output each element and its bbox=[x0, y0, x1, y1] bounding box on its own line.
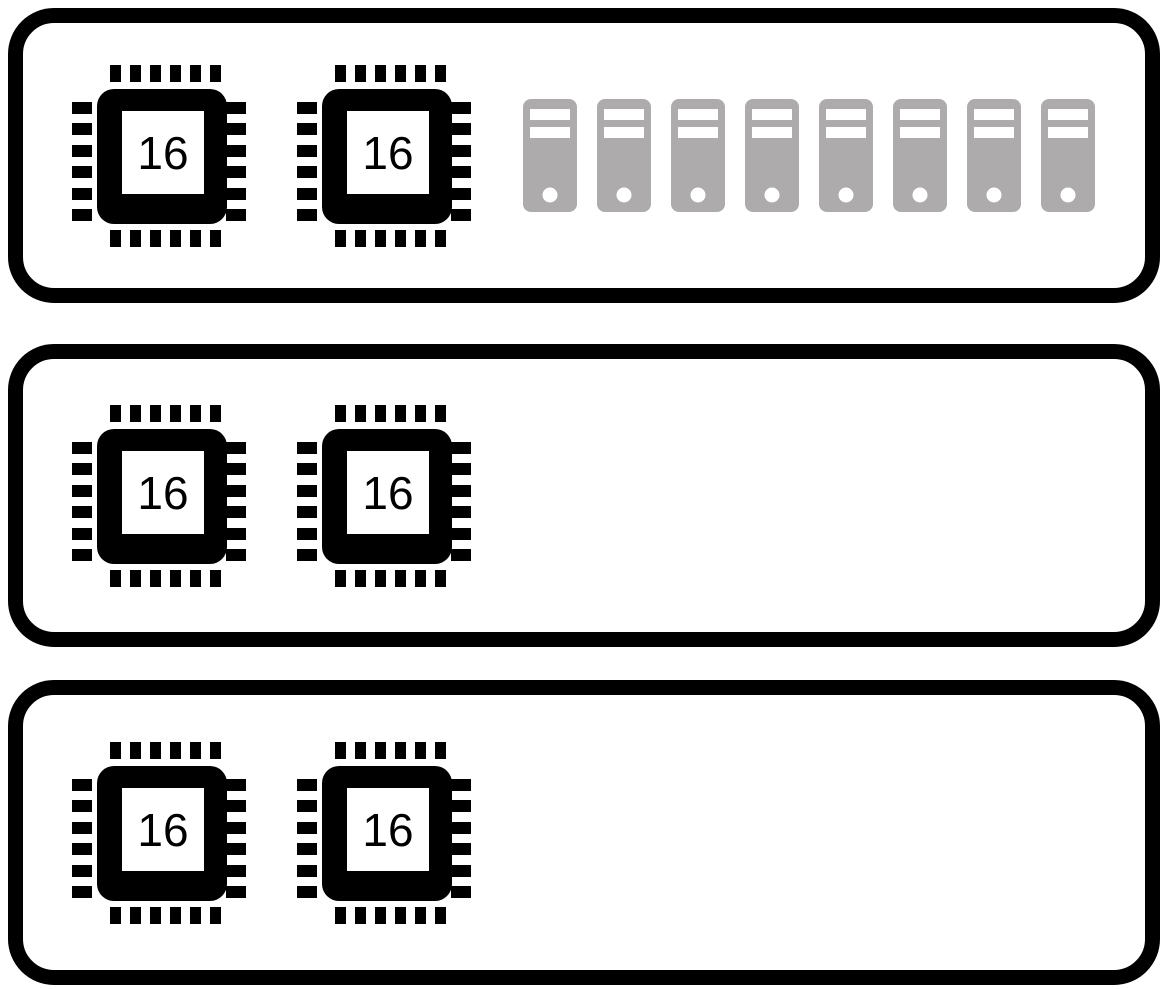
server-power-dot bbox=[765, 188, 780, 203]
compute-node-3: 16 bbox=[8, 680, 1160, 985]
cpu-group-node-2: 16 bbox=[70, 405, 473, 587]
cpu-pins-bottom bbox=[335, 907, 446, 924]
cpu-pins-right bbox=[226, 102, 246, 221]
cpu-core-count: 16 bbox=[362, 127, 413, 179]
hpc-node-diagram: 16 bbox=[0, 0, 1166, 989]
server-power-dot bbox=[987, 188, 1002, 203]
server-power-dot bbox=[617, 188, 632, 203]
cpu-pins-top bbox=[110, 742, 221, 759]
server-tower-icon bbox=[1041, 99, 1095, 212]
server-power-dot bbox=[839, 188, 854, 203]
cpu-pins-left bbox=[297, 442, 317, 561]
cpu-pins-right bbox=[226, 779, 246, 898]
cpu-pins-bottom bbox=[110, 907, 221, 924]
cpu-core-count: 16 bbox=[137, 127, 188, 179]
cpu-pins-bottom bbox=[110, 230, 221, 247]
cpu-pins-left bbox=[72, 779, 92, 898]
server-slot-bottom bbox=[604, 127, 644, 138]
server-group-node-1 bbox=[523, 99, 1095, 212]
cpu-pins-bottom bbox=[335, 570, 446, 587]
cpu-core-count: 16 bbox=[137, 804, 188, 856]
server-tower-icon bbox=[819, 99, 873, 212]
cpu-pins-right bbox=[451, 779, 471, 898]
cpu-chip-icon: 16 bbox=[295, 65, 473, 247]
cpu-pins-top bbox=[335, 742, 446, 759]
cpu-core-count: 16 bbox=[362, 467, 413, 519]
cpu-chip-icon: 16 bbox=[70, 65, 248, 247]
cpu-pins-left bbox=[72, 102, 92, 221]
server-tower-icon bbox=[523, 99, 577, 212]
server-tower-icon bbox=[745, 99, 799, 212]
server-slot-top bbox=[900, 109, 940, 120]
server-slot-top bbox=[1048, 109, 1088, 120]
compute-node-2: 16 bbox=[8, 344, 1160, 647]
server-slot-top bbox=[678, 109, 718, 120]
cpu-group-node-1: 16 bbox=[70, 65, 473, 247]
server-slot-bottom bbox=[900, 127, 940, 138]
server-slot-bottom bbox=[826, 127, 866, 138]
server-power-dot bbox=[1061, 188, 1076, 203]
server-power-dot bbox=[691, 188, 706, 203]
server-slot-bottom bbox=[1048, 127, 1088, 138]
server-slot-top bbox=[604, 109, 644, 120]
cpu-pins-right bbox=[451, 102, 471, 221]
cpu-chip-icon: 16 bbox=[70, 742, 248, 924]
server-power-dot bbox=[913, 188, 928, 203]
cpu-pins-top bbox=[110, 405, 221, 422]
server-slot-bottom bbox=[974, 127, 1014, 138]
cpu-chip-icon: 16 bbox=[70, 405, 248, 587]
cpu-pins-top bbox=[335, 65, 446, 82]
server-slot-top bbox=[752, 109, 792, 120]
server-slot-bottom bbox=[752, 127, 792, 138]
server-power-dot bbox=[543, 188, 558, 203]
server-slot-bottom bbox=[678, 127, 718, 138]
cpu-chip-icon: 16 bbox=[295, 405, 473, 587]
cpu-pins-left bbox=[297, 102, 317, 221]
server-tower-icon bbox=[671, 99, 725, 212]
server-tower-icon bbox=[967, 99, 1021, 212]
cpu-core-count: 16 bbox=[137, 467, 188, 519]
cpu-core-count: 16 bbox=[362, 804, 413, 856]
cpu-pins-right bbox=[451, 442, 471, 561]
cpu-pins-top bbox=[335, 405, 446, 422]
server-slot-top bbox=[974, 109, 1014, 120]
server-slot-bottom bbox=[530, 127, 570, 138]
cpu-chip-icon: 16 bbox=[295, 742, 473, 924]
cpu-pins-left bbox=[297, 779, 317, 898]
server-slot-top bbox=[530, 109, 570, 120]
cpu-pins-top bbox=[110, 65, 221, 82]
cpu-pins-right bbox=[226, 442, 246, 561]
cpu-pins-left bbox=[72, 442, 92, 561]
server-tower-icon bbox=[597, 99, 651, 212]
cpu-group-node-3: 16 bbox=[70, 742, 473, 924]
cpu-pins-bottom bbox=[335, 230, 446, 247]
server-tower-icon bbox=[893, 99, 947, 212]
cpu-pins-bottom bbox=[110, 570, 221, 587]
server-slot-top bbox=[826, 109, 866, 120]
compute-node-1: 16 bbox=[8, 8, 1160, 303]
